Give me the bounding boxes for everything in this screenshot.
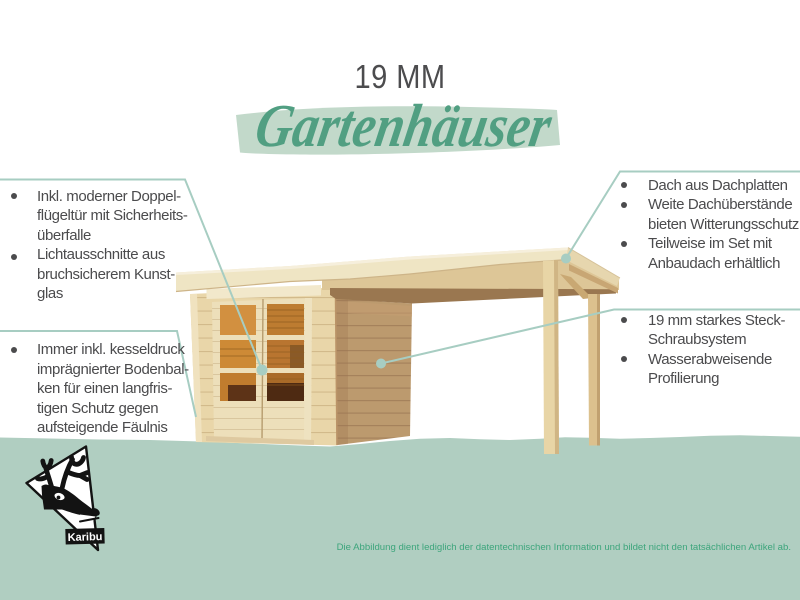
svg-text:Gartenhäuser: Gartenhäuser bbox=[251, 92, 558, 159]
svg-text:Karibu: Karibu bbox=[67, 531, 102, 544]
